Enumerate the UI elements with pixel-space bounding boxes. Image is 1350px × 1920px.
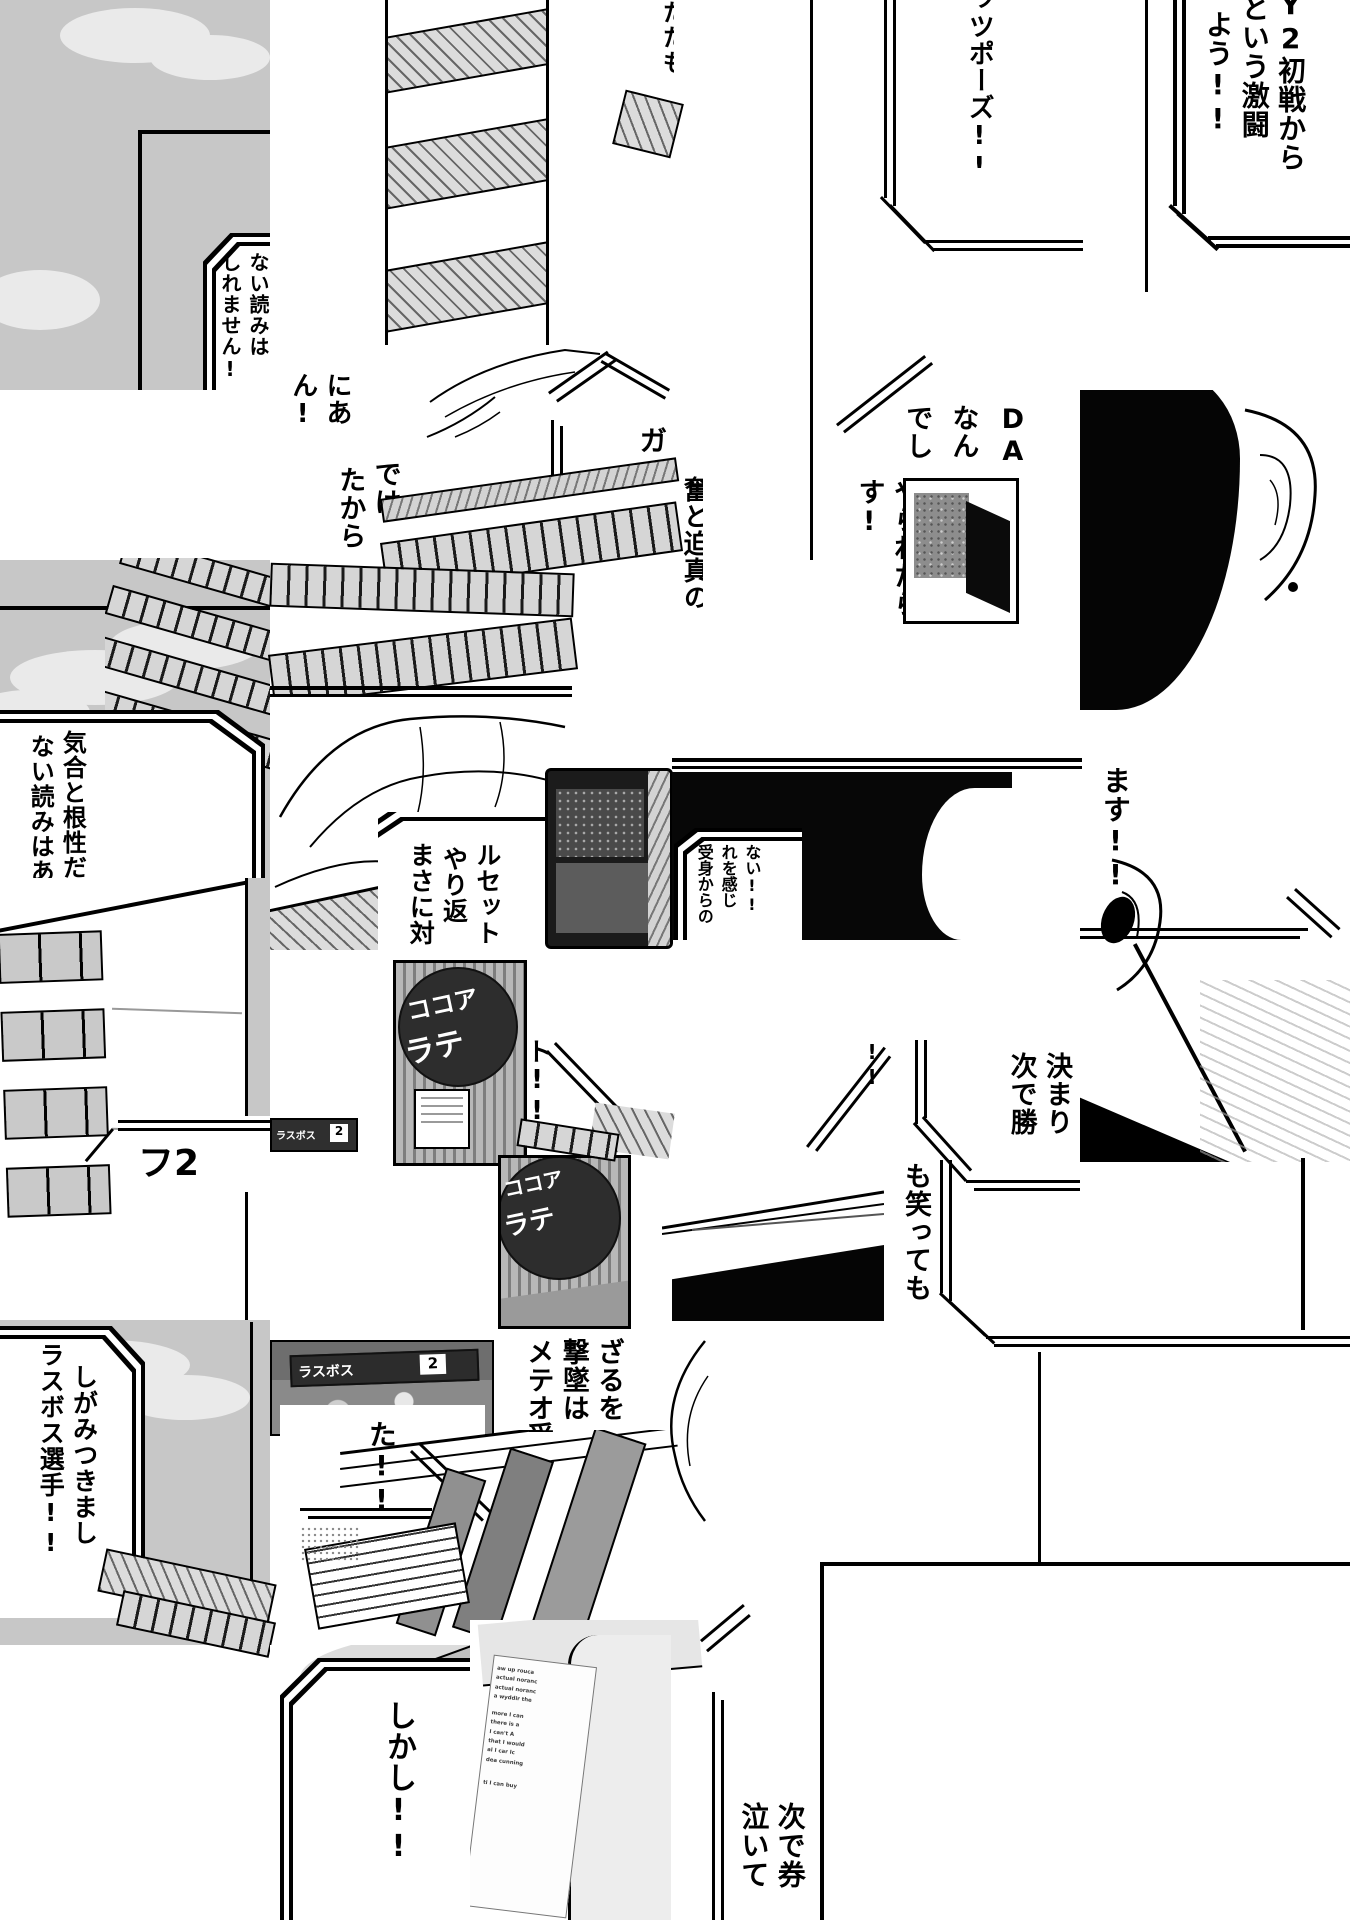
building-windows <box>269 563 574 618</box>
bubble-border <box>889 204 936 252</box>
panel-border <box>1038 1352 1041 1564</box>
bubble-border <box>1208 236 1350 240</box>
bubble-border <box>933 248 1083 251</box>
bubble-border <box>986 1336 1350 1339</box>
panel-border <box>1301 1158 1305 1330</box>
bubble-border <box>893 0 896 206</box>
card-photo <box>903 478 1019 624</box>
bubble-border <box>1216 244 1350 248</box>
scoreboard-mini-team: ラスボス <box>276 1127 316 1142</box>
bubble-border <box>974 1188 1080 1191</box>
scoreboard-score: 2 <box>420 1354 447 1375</box>
speech-bubble-y2: Y2初戦から という激闘 よう!! <box>1192 0 1344 208</box>
panel-border <box>810 0 813 560</box>
scoreboard-mini-score: 2 <box>330 1124 348 1142</box>
panel-border <box>672 758 1082 762</box>
bubble-border <box>554 1042 623 1113</box>
manga-collage-page: ない読みは しれません! たたも ッツポーズ!! Y2初戦から という激闘 <box>0 0 1350 1920</box>
latte-sign-left: ココア ラテ <box>393 960 527 1166</box>
bubble-border <box>1182 0 1186 214</box>
speech-text-funto: 奮と迫真の <box>671 476 703 642</box>
speech-bubble-masani: ルセット!! やり返 まさに対2 <box>378 812 572 950</box>
bubble-border <box>815 1055 891 1151</box>
panel-border <box>820 1562 1350 1566</box>
table-edge-lines <box>662 1190 884 1235</box>
speedlines <box>1200 980 1350 1162</box>
scoreboard-mini: ラスボス 2 <box>270 1118 358 1152</box>
bubble-border <box>601 360 667 400</box>
bubble-border <box>1176 212 1219 251</box>
panel-border <box>270 686 572 690</box>
bubble-border <box>551 420 554 478</box>
scoreboard: ラスボス 2 <box>289 1349 479 1388</box>
receipt-panel: aw up rouca actual noranc actual noranc … <box>470 1620 705 1920</box>
bubble-border <box>1173 0 1177 206</box>
speech-bubble-da: でし なん DA <box>893 402 1035 478</box>
building-facade <box>0 878 248 1323</box>
building-tall <box>385 0 549 345</box>
speech-text-forecast: ない読みは しれません! <box>208 252 268 390</box>
bubble-border <box>994 1344 1350 1347</box>
earring-dot <box>1288 582 1298 592</box>
bubble-border <box>560 426 563 478</box>
speech-bubble-meteo: ざるを 撃墜は メテオ受 <box>512 1336 648 1432</box>
bubble-border <box>605 352 671 392</box>
speech-text-shikashi: しかし!! <box>368 1700 414 1885</box>
speech-text-tsugi: 決まり 次で勝 <box>962 1052 1070 1182</box>
speech-text-to-fragment: ト!! <box>518 1038 550 1120</box>
speech-bubble-guts-pose: ッツポーズ!! <box>954 0 998 168</box>
phone <box>545 768 673 949</box>
curtain-sketch <box>425 342 610 440</box>
panel-border <box>138 130 142 390</box>
black-table-shadow <box>672 1245 884 1321</box>
bubble-border <box>806 1047 886 1148</box>
panel-border <box>1145 0 1148 292</box>
ear-sketch <box>1225 400 1345 620</box>
bubble-border <box>924 1040 927 1118</box>
scoreboard-team: ラスボス <box>298 1360 354 1382</box>
bubble-border <box>949 1160 952 1301</box>
bubble-border <box>940 1160 943 1293</box>
bubble-border <box>925 240 1083 243</box>
small-sign <box>414 1089 470 1149</box>
speech-text-katamo-fragment: たたも <box>650 0 674 100</box>
speech-text-naite: 次で券 泣いて <box>730 1800 830 1920</box>
speech-text-mo-waratte: も笑っても <box>885 1162 929 1332</box>
ear-closeup-panel <box>1080 390 1350 762</box>
panel-border <box>672 766 1082 769</box>
bubble-border <box>884 0 887 198</box>
speech-bubble-ukemi: ない!! れを感じ 受身からの <box>674 828 802 940</box>
speech-text-fu2: フ2 <box>138 1134 199 1186</box>
ear-shape <box>922 788 1012 940</box>
bubble-border <box>721 1700 724 1920</box>
panel-border <box>138 130 270 134</box>
bubble-border <box>915 1040 918 1124</box>
latte-sign-right: ココア ラテ <box>498 1155 631 1329</box>
speech-bubble-fu2: フ2 <box>118 1116 272 1192</box>
bubble-border <box>712 1692 715 1920</box>
speech-text-fragment: にあ ん! <box>288 372 350 457</box>
